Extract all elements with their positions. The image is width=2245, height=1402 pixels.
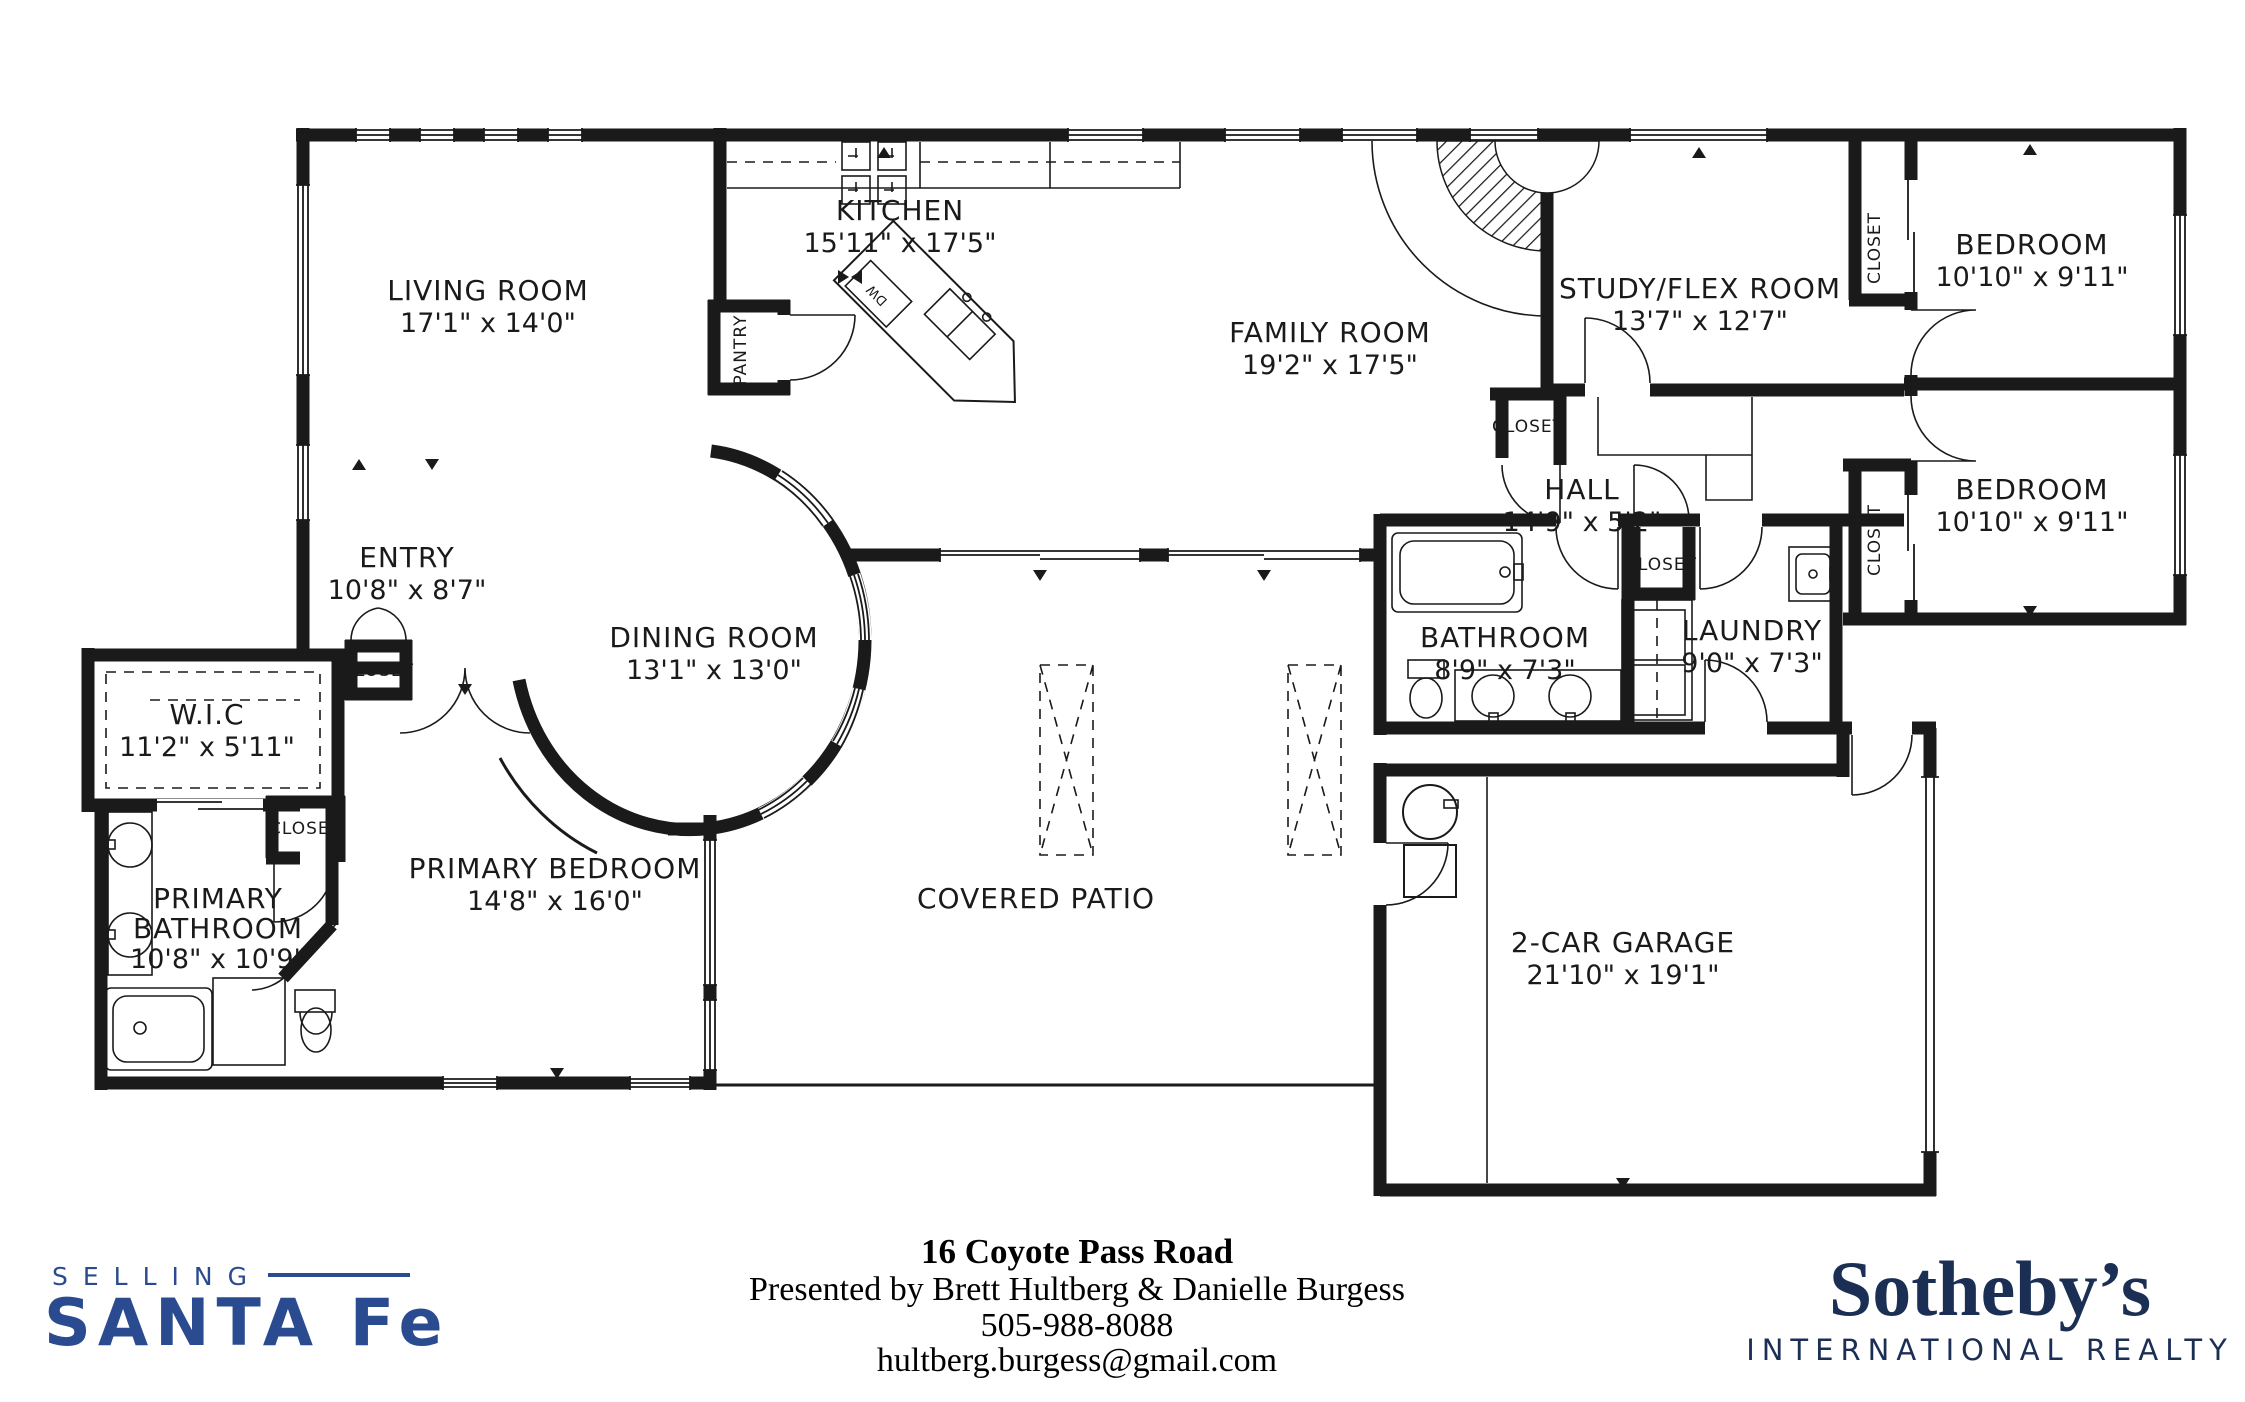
window-bedroom1-right	[2173, 215, 2187, 335]
santa-fe-word: SANTA Fe	[44, 1286, 450, 1361]
selling-santa-fe-logo: SELLING SANTA Fe	[44, 1262, 450, 1361]
slider-wic	[157, 799, 263, 812]
closet-label-primary: CLOSET	[269, 819, 341, 839]
room-dims-kitchen: 15'11" x 17'5"	[803, 228, 996, 259]
room-label-hall: HALL	[1544, 473, 1619, 506]
room-dims-primary-bath: 10'8" x 10'9"	[130, 944, 306, 975]
footer-email: hultberg.burgess@gmail.com	[877, 1342, 1277, 1379]
footer-presented-by: Presented by Brett Hultberg & Danielle B…	[749, 1271, 1405, 1308]
footer: SELLING SANTA Fe 16 Coyote Pass Road Pre…	[44, 1232, 2234, 1379]
closet-label-bedroom2: CLOSET	[1865, 504, 1885, 576]
room-dims-family-room: 19'2" x 17'5"	[1242, 350, 1418, 381]
sothebys-logo: Sotheby’s INTERNATIONAL REALTY	[1746, 1245, 2234, 1367]
closet-label-hall-top: CLOSET	[1492, 417, 1564, 437]
room-label-laundry: LAUNDRY	[1682, 614, 1822, 647]
room-label-study: STUDY/FLEX ROOM	[1559, 272, 1841, 305]
room-dims-wic: 11'2" x 5'11"	[119, 732, 295, 763]
room-label-bedroom-1: BEDROOM	[1955, 228, 2108, 261]
footer-address: 16 Coyote Pass Road	[921, 1232, 1234, 1271]
closet-label-hall-bottom: CLOSET	[1625, 555, 1697, 575]
sothebys-subtitle: INTERNATIONAL REALTY	[1746, 1333, 2234, 1367]
slider-closet-bedroom1	[1904, 180, 1918, 292]
window-bedroom2-right	[2173, 455, 2187, 575]
floor-plan-canvas: DW	[0, 0, 2245, 1402]
room-dims-bathroom: 8'9" x 7'3"	[1434, 655, 1576, 686]
room-label-bathroom: BATHROOM	[1420, 621, 1590, 654]
room-label-wic: W.I.C	[169, 698, 244, 731]
garage-fixtures	[1403, 777, 1487, 1183]
room-label-entry: ENTRY	[359, 541, 455, 574]
room-label-patio: COVERED PATIO	[917, 882, 1155, 915]
footer-text-block: 16 Coyote Pass Road Presented by Brett H…	[749, 1232, 1405, 1379]
room-dims-primary-bedroom: 14'8" x 16'0"	[467, 886, 643, 917]
room-label-family-room: FAMILY ROOM	[1229, 316, 1431, 349]
room-label-living-room: LIVING ROOM	[387, 274, 589, 307]
kitchen-counter	[727, 142, 1180, 188]
window-study-top	[1630, 128, 1767, 142]
pantry-label: PANTRY	[731, 314, 751, 385]
room-dims-bedroom-2: 10'10" x 9'11"	[1935, 507, 2128, 538]
closet-label-entry: CLOSET	[342, 661, 414, 681]
room-dims-dining: 13'1" x 13'0"	[626, 655, 802, 686]
room-dims-entry: 10'8" x 8'7"	[328, 575, 487, 606]
slider-closet-bedroom2	[1904, 495, 1918, 600]
room-label-garage: 2-CAR GARAGE	[1511, 926, 1735, 959]
room-label-primary-bath-2: BATHROOM	[133, 912, 303, 945]
room-dims-garage: 21'10" x 19'1"	[1526, 960, 1719, 991]
garage-door	[1921, 777, 1939, 1152]
footer-phone: 505-988-8088	[981, 1307, 1174, 1344]
room-label-primary-bedroom: PRIMARY BEDROOM	[409, 852, 702, 885]
room-dims-laundry: 9'0" x 7'3"	[1681, 648, 1823, 679]
room-dims-hall: 14'9" x 5'2"	[1503, 507, 1662, 538]
room-dims-living-room: 17'1" x 14'0"	[400, 308, 576, 339]
window-primary-right	[703, 840, 717, 1070]
patio-columns	[1040, 665, 1341, 855]
room-dims-study: 13'7" x 12'7"	[1612, 306, 1788, 337]
room-label-dining: DINING ROOM	[609, 621, 818, 654]
sothebys-word: Sotheby’s	[1829, 1245, 2151, 1332]
room-dims-bedroom-1: 10'10" x 9'11"	[1935, 262, 2128, 293]
room-label-kitchen: KITCHEN	[836, 194, 964, 227]
dw-label: DW	[864, 281, 891, 308]
window-living-left	[296, 185, 310, 520]
room-label-bedroom-2: BEDROOM	[1955, 473, 2108, 506]
closet-label-bedroom1: CLOSET	[1865, 212, 1885, 284]
room-label-primary-bath-1: PRIMARY	[153, 882, 283, 915]
